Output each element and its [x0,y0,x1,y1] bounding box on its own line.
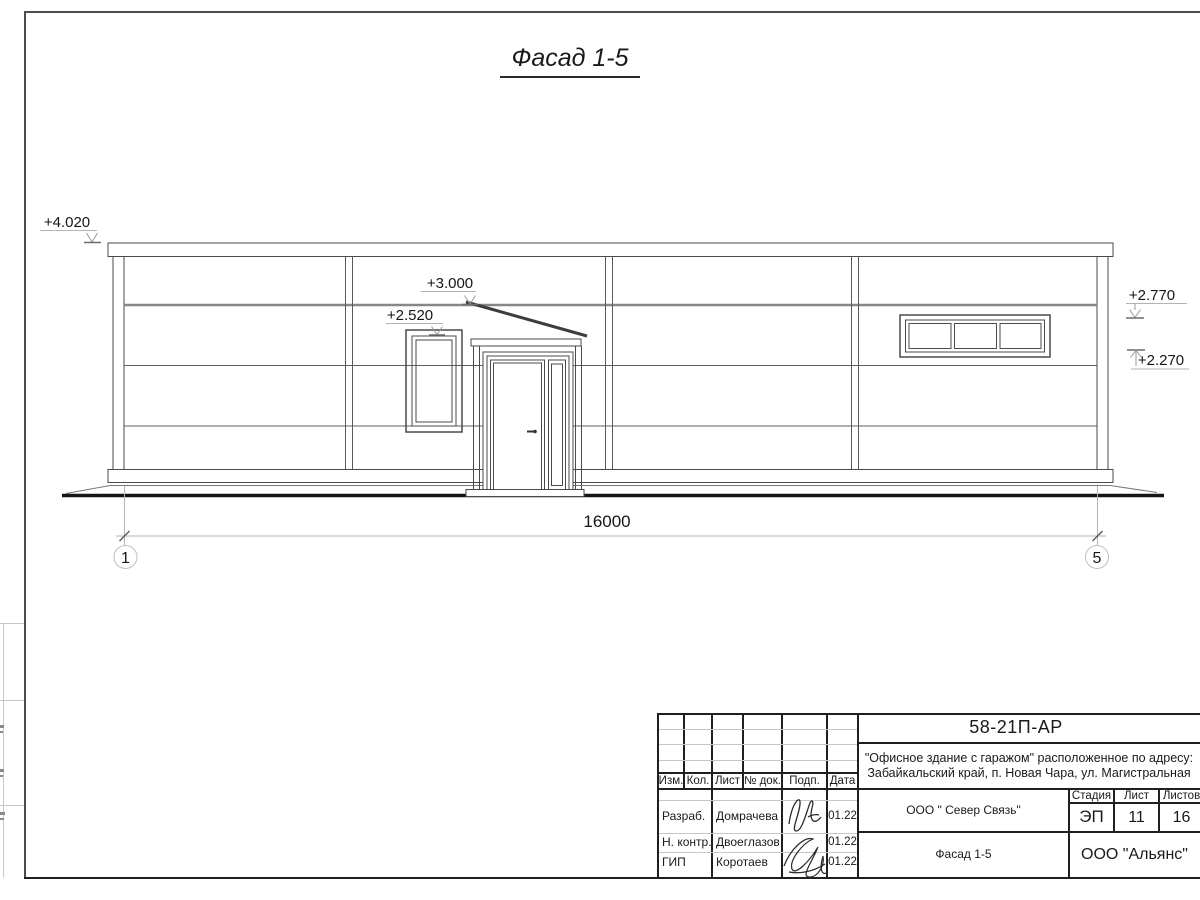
drawing-sheet: Фасад 1-5 [0,0,1200,900]
tb-faint-line [659,760,857,761]
tb-col-data: Дата [827,773,858,789]
tb-view-name: Фасад 1-5 [858,832,1069,877]
signature-dvoeglazov-korotaev [781,832,829,878]
tb-stage-value: ЭП [1069,803,1114,832]
tb-role: ГИП [658,852,712,873]
tb-project-line2: Забайкальский край, п. Новая Чара, ул. М… [867,766,1190,781]
tb-date: 01.22 [827,800,858,833]
tb-contractor: ООО " Север Связь" [858,789,1069,832]
signature-domracheva [783,792,825,836]
tb-stage-label: Стадия [1069,789,1114,803]
tb-col-izm: Изм. [658,773,684,789]
title-block: Изм. Кол. Лист № док. Подп. Дата Разраб.… [0,0,1200,900]
tb-col-podp: Подп. [782,773,827,789]
tb-project-address: "Офисное здание с гаражом" расположенное… [858,743,1200,789]
tb-date: 01.22 [827,833,858,852]
tb-role: Н. контр. [658,833,712,852]
tb-col-kol: Кол. [684,773,712,789]
tb-name: Домрачева [712,800,782,833]
tb-role: Разраб. [658,800,712,833]
tb-col-list: Лист [712,773,743,789]
tb-faint-line [659,744,857,745]
tb-sheet-value: 11 [1114,803,1159,832]
tb-project-line1: "Офисное здание с гаражом" расположенное… [865,751,1193,766]
tb-col-ndok: № док. [743,773,782,789]
tb-sheets-label: Листов [1159,789,1200,803]
tb-sheet-label: Лист [1114,789,1159,803]
tb-date: 01.22 [827,852,858,873]
tb-doc-number: 58-21П-АР [858,714,1200,742]
tb-name: Коротаев [712,852,782,873]
tb-organization: ООО "Альянс" [1069,832,1200,877]
tb-name: Двоеглазов [712,833,782,852]
tb-faint-line [659,729,857,730]
tb-sheets-value: 16 [1159,803,1200,832]
